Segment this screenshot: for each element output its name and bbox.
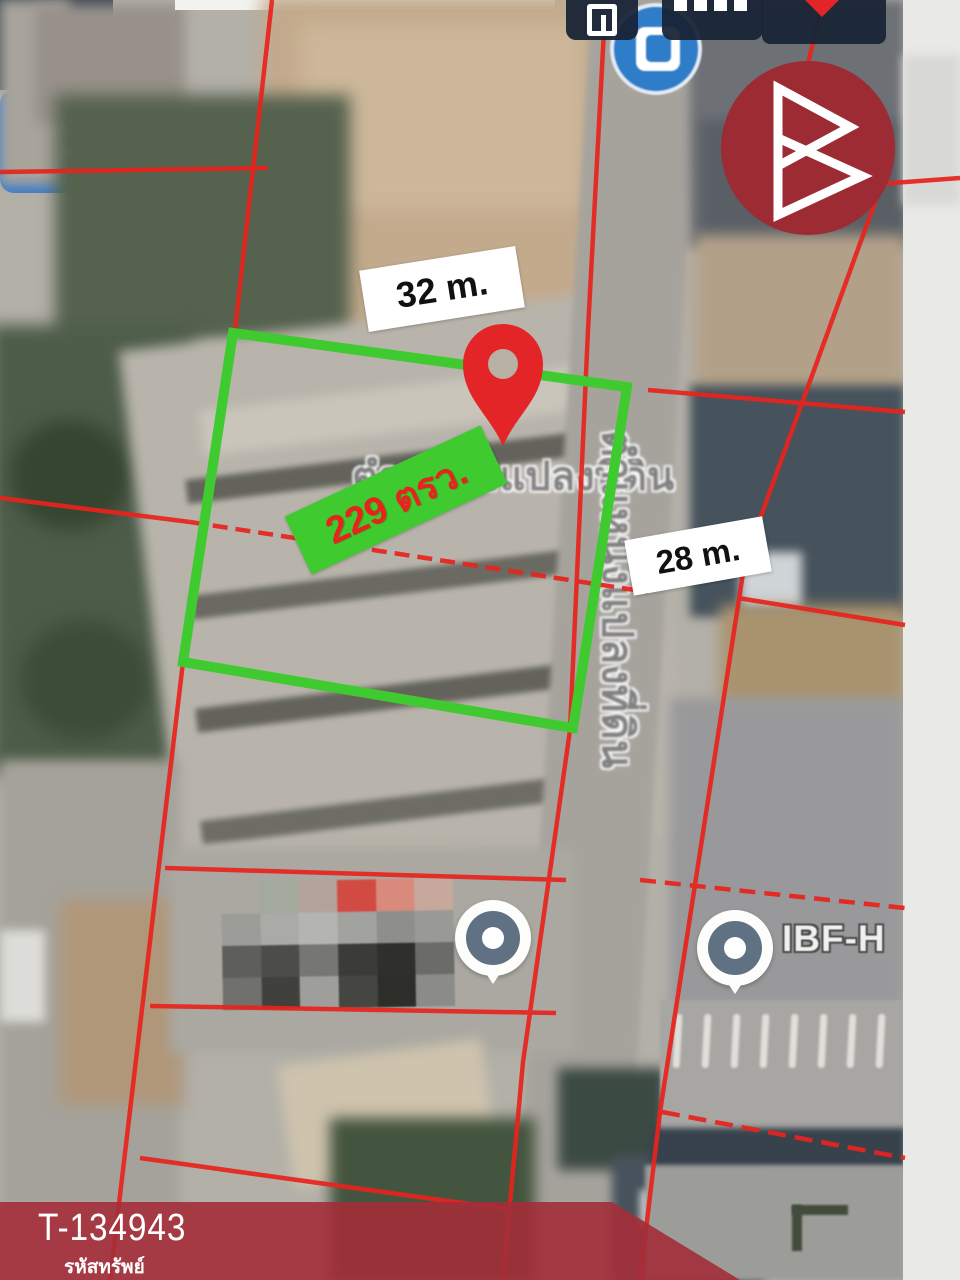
map-label-chip[interactable] <box>762 0 886 44</box>
map-annotations <box>0 0 960 1280</box>
map-tool-chip[interactable] <box>662 0 763 40</box>
map-screenshot: ตำแหน่งแปลงที่ดิน ตำแหน่งแปลงที่ดิน 32 <box>0 0 960 1280</box>
poi-label-ibf: IBF-H <box>782 918 908 960</box>
map-poi-marker[interactable] <box>697 910 773 986</box>
property-code-banner: T-134943 รหัสทรัพย์ <box>0 1202 740 1280</box>
property-code-caption: รหัสทรัพย์ <box>64 1252 145 1280</box>
map-tool-chip[interactable] <box>566 0 638 40</box>
cadastral-lines <box>0 0 960 1280</box>
property-code: T-134943 <box>38 1207 186 1250</box>
building-icon <box>587 4 617 36</box>
map-poi-marker[interactable] <box>455 900 531 976</box>
pin-icon <box>805 0 839 17</box>
windows-icon <box>674 0 747 11</box>
